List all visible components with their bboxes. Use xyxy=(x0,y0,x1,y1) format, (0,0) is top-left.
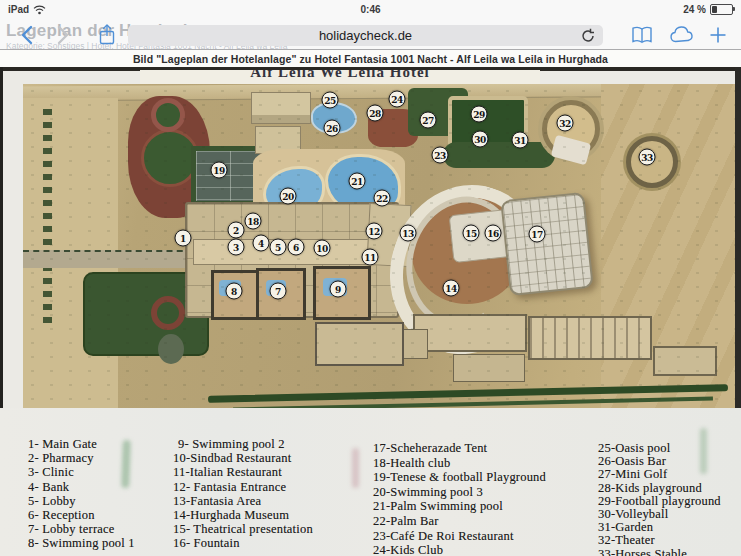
legend-column-2: 9- Swimming pool 210-Sindbad Restaurant1… xyxy=(173,437,313,551)
safari-window: iPad 0:46 24 % Lageplan der Hotelanlage … xyxy=(0,0,741,556)
map-marker-18: 18 xyxy=(245,213,262,230)
map-marker-3: 3 xyxy=(228,239,245,256)
legend-item: 33-Horses Stable xyxy=(598,548,721,556)
map-marker-17: 17 xyxy=(529,226,546,243)
marker-layer: 1234567891011121314151617181920212223242… xyxy=(23,84,735,408)
back-button[interactable] xyxy=(14,23,40,47)
url-text: holidaycheck.de xyxy=(319,28,412,43)
map-marker-7: 7 xyxy=(270,283,287,300)
image-caption: Bild "Lageplan der Hotelanlage" zu Hotel… xyxy=(133,53,608,65)
legend-item: 27-Mini Golf xyxy=(598,468,721,481)
scan-artifact xyxy=(352,448,359,488)
legend-item: 20-Swimming pool 3 xyxy=(373,485,546,500)
forward-button[interactable] xyxy=(50,23,76,47)
map-marker-23: 23 xyxy=(432,147,449,164)
legend-item: 11-Italian Restaurant xyxy=(173,465,313,479)
map-marker-11: 11 xyxy=(362,249,379,266)
legend-item: 9- Swimming pool 2 xyxy=(173,437,313,451)
map-legend: 1- Main Gate2- Pharmacy3- Clinic4- Bank5… xyxy=(0,408,741,556)
map-title: Alf Leila We Leila Hotel xyxy=(140,70,540,81)
legend-item: 2- Pharmacy xyxy=(28,451,135,465)
map-marker-13: 13 xyxy=(400,225,417,242)
legend-item: 3- Clinic xyxy=(28,465,135,479)
clock: 0:46 xyxy=(0,4,741,15)
map-marker-33: 33 xyxy=(639,149,656,166)
battery-icon xyxy=(710,4,733,15)
legend-item: 21-Palm Swimming pool xyxy=(373,499,546,514)
map-marker-5: 5 xyxy=(270,239,287,256)
scanned-map-image[interactable]: Alf Leila We Leila Hotel xyxy=(0,67,741,556)
reload-icon[interactable] xyxy=(580,27,598,45)
status-bar: iPad 0:46 24 % xyxy=(0,0,741,20)
map-marker-16: 16 xyxy=(485,225,502,242)
map-marker-9: 9 xyxy=(330,281,347,298)
battery-percent: 24 % xyxy=(683,4,706,15)
legend-item: 12- Fantasia Entrance xyxy=(173,480,313,494)
legend-item: 22-Palm Bar xyxy=(373,514,546,529)
legend-item: 24-Kids Club xyxy=(373,543,546,556)
legend-column-4: 25-Oasis pool26-Oasis Bar27-Mini Golf28-… xyxy=(598,442,721,556)
legend-item: 8- Swimming pool 1 xyxy=(28,536,135,550)
icloud-tabs-cloud-icon[interactable] xyxy=(669,23,695,47)
map-marker-26: 26 xyxy=(324,120,341,137)
map-marker-1: 1 xyxy=(175,230,192,247)
new-tab-plus-icon[interactable] xyxy=(705,23,731,47)
legend-item: 1- Main Gate xyxy=(28,437,135,451)
map-marker-29: 29 xyxy=(471,106,488,123)
map-marker-30: 30 xyxy=(472,131,489,148)
legend-item: 15- Theatrical presentation xyxy=(173,522,313,536)
legend-item: 18-Health club xyxy=(373,456,546,471)
scan-right-border xyxy=(735,67,741,412)
map-marker-21: 21 xyxy=(349,173,366,190)
map-marker-28: 28 xyxy=(367,105,384,122)
legend-item: 14-Hurghada Museum xyxy=(173,508,313,522)
map-marker-15: 15 xyxy=(463,225,480,242)
map-marker-27: 27 xyxy=(420,112,437,129)
map-marker-10: 10 xyxy=(314,240,331,257)
map-marker-8: 8 xyxy=(226,283,243,300)
map-marker-20: 20 xyxy=(280,188,297,205)
map-marker-14: 14 xyxy=(443,280,460,297)
bookmarks-book-icon[interactable] xyxy=(629,23,655,47)
map-marker-6: 6 xyxy=(288,239,305,256)
share-icon[interactable] xyxy=(94,23,120,47)
aerial-photo: 1234567891011121314151617181920212223242… xyxy=(23,84,735,408)
legend-item: 19-Tenese & football Playground xyxy=(373,470,546,485)
image-caption-bar: Bild "Lageplan der Hotelanlage" zu Hotel… xyxy=(0,50,741,67)
legend-item: 17-Scheherazade Tent xyxy=(373,441,546,456)
legend-item: 13-Fantasia Area xyxy=(173,494,313,508)
legend-item: 6- Reception xyxy=(28,508,135,522)
legend-item: 7- Lobby terrace xyxy=(28,522,135,536)
map-marker-25: 25 xyxy=(322,92,339,109)
legend-item: 10-Sindbad Restaurant xyxy=(173,451,313,465)
map-title-strip: Alf Leila We Leila Hotel xyxy=(140,70,540,84)
legend-item: 4- Bank xyxy=(28,480,135,494)
map-marker-12: 12 xyxy=(366,223,383,240)
legend-column-3: 17-Scheherazade Tent18-Health club19-Ten… xyxy=(373,441,546,556)
legend-item: 23-Café De Roi Restaurant xyxy=(373,529,546,544)
legend-item: 32-Theater xyxy=(598,534,721,547)
map-marker-19: 19 xyxy=(211,162,228,179)
map-marker-4: 4 xyxy=(253,235,270,252)
map-marker-31: 31 xyxy=(512,132,529,149)
map-marker-2: 2 xyxy=(228,222,245,239)
legend-column-1: 1- Main Gate2- Pharmacy3- Clinic4- Bank5… xyxy=(28,437,135,551)
legend-item: 5- Lobby xyxy=(28,494,135,508)
map-marker-32: 32 xyxy=(557,115,574,132)
safari-toolbar: Lageplan der Hotelanlage Kategorie: Sons… xyxy=(0,20,741,50)
legend-item: 28-Kids playground xyxy=(598,482,721,495)
map-marker-22: 22 xyxy=(374,190,391,207)
legend-item: 16- Fountain xyxy=(173,536,313,550)
address-bar[interactable]: holidaycheck.de xyxy=(128,25,603,46)
map-marker-24: 24 xyxy=(389,91,406,108)
